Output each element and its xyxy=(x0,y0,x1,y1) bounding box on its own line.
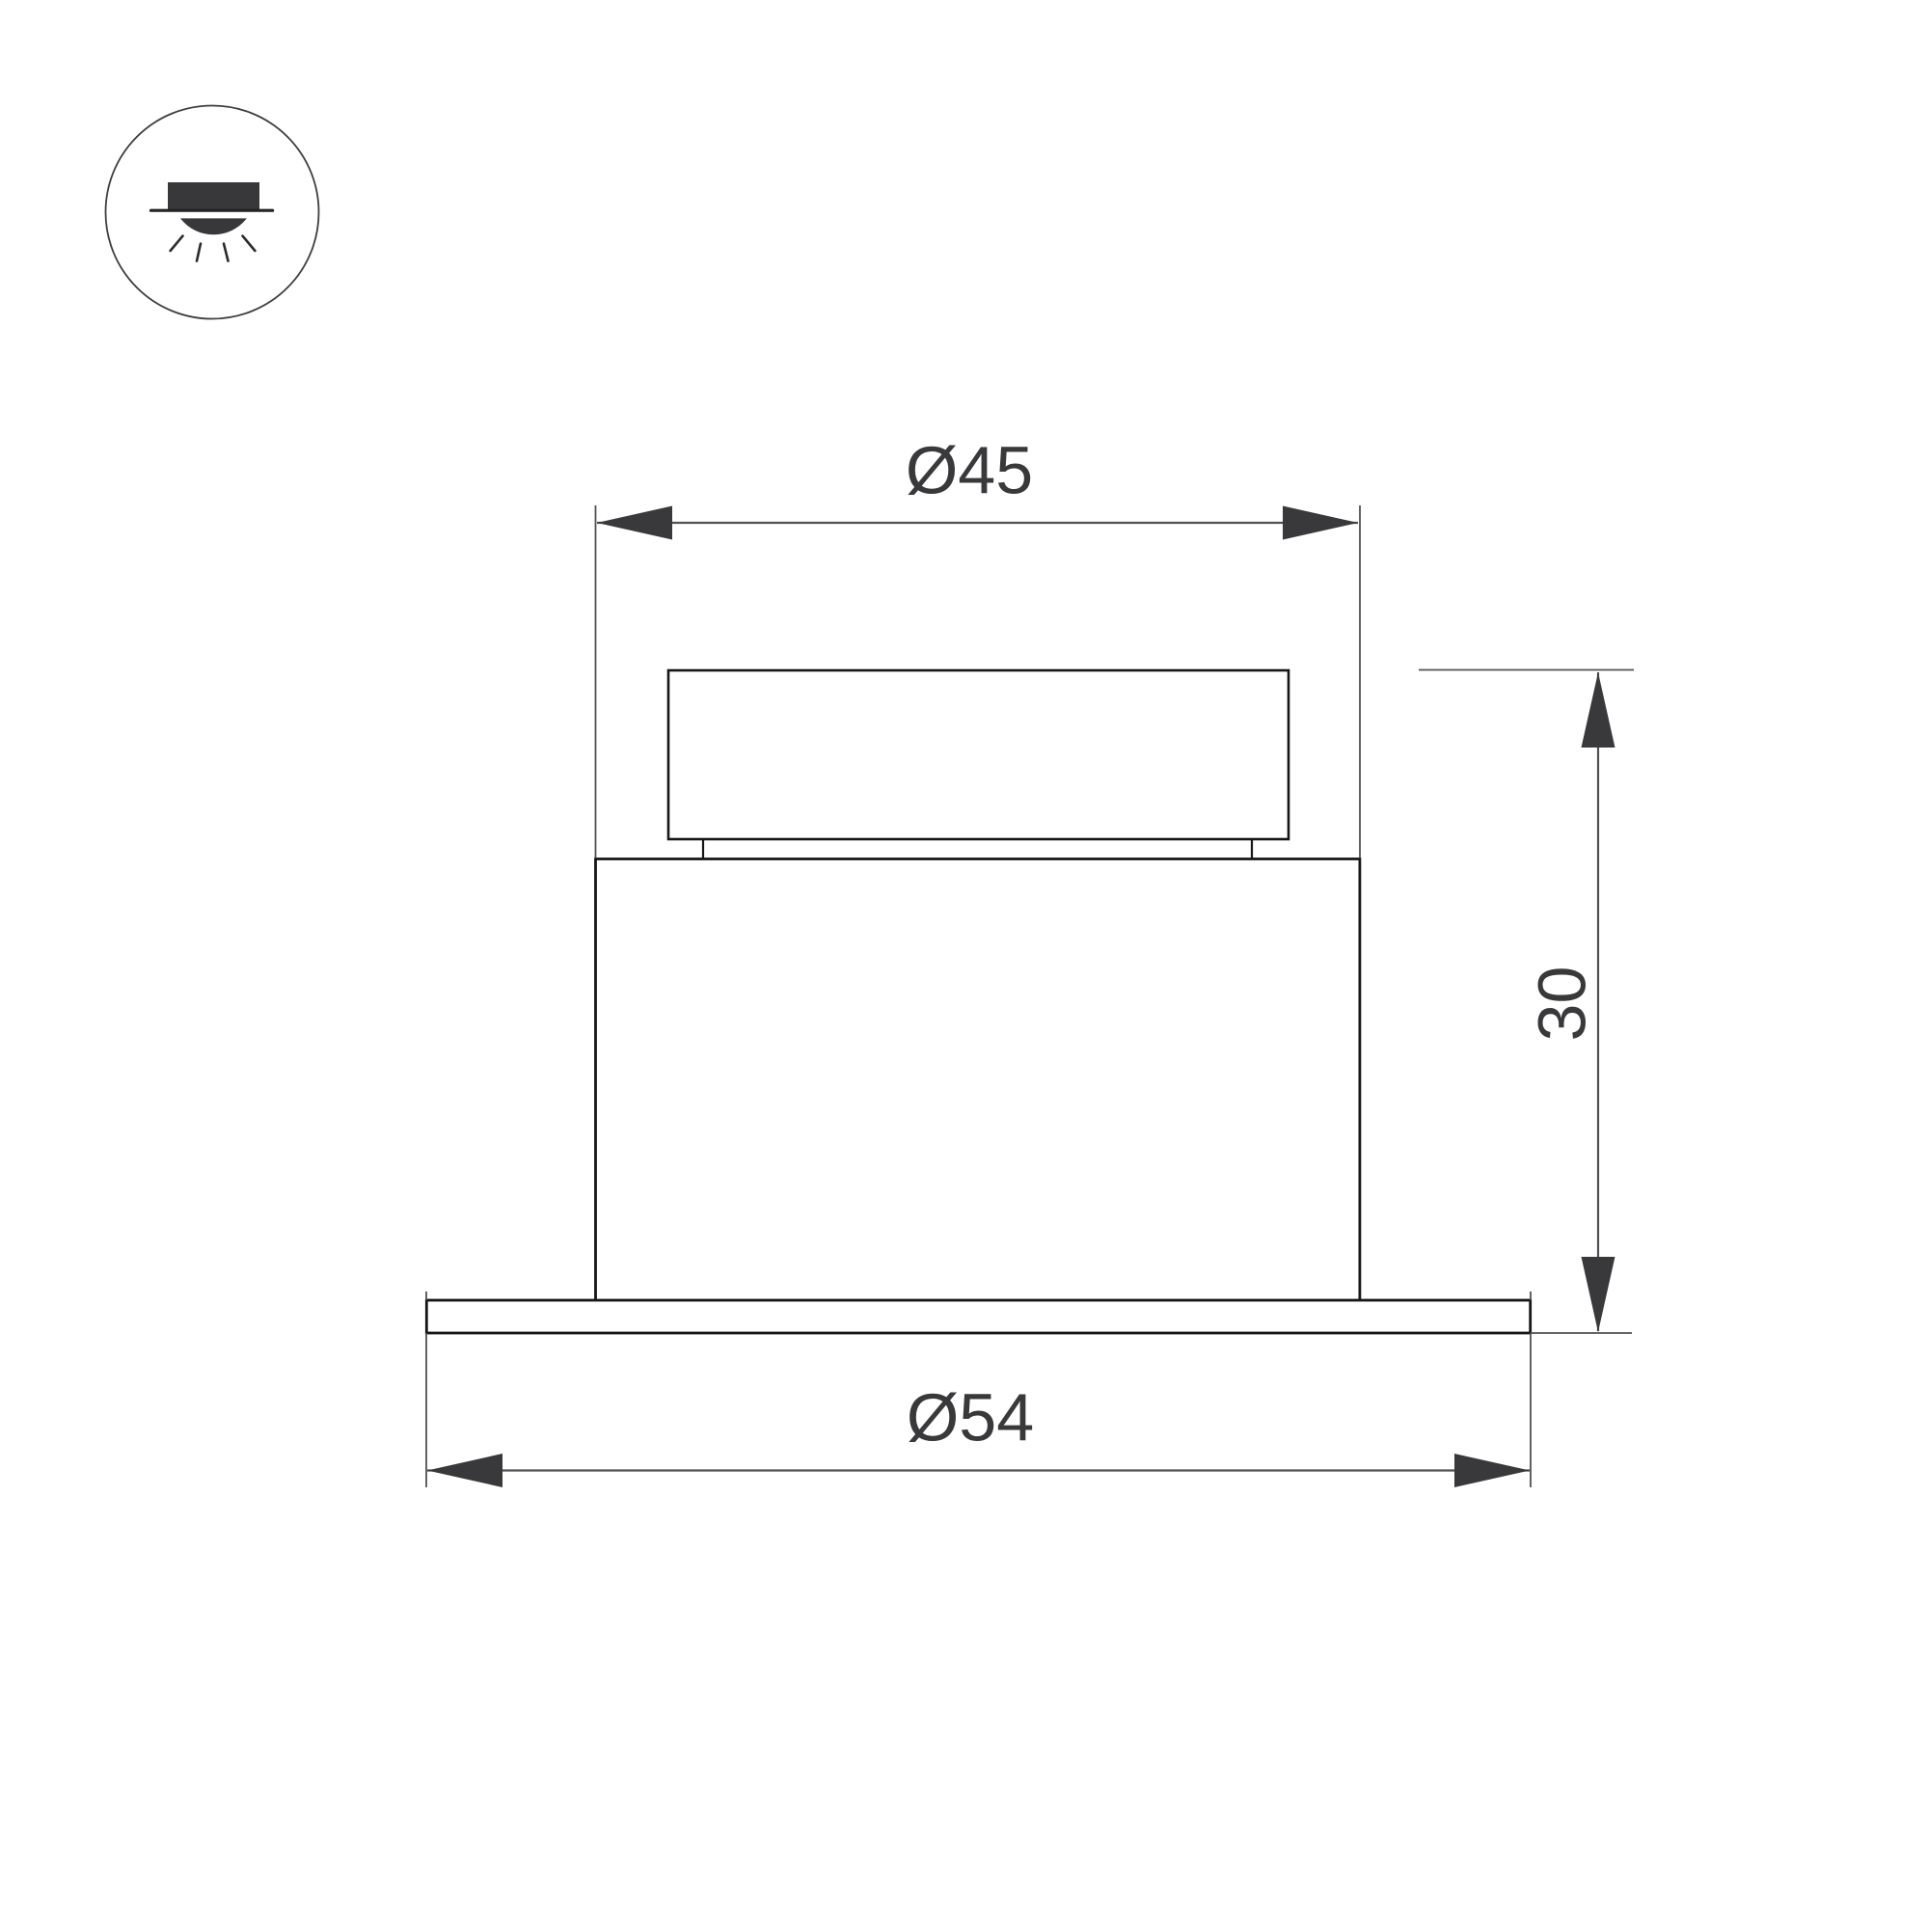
svg-text:Ø45: Ø45 xyxy=(906,433,1033,508)
svg-text:30: 30 xyxy=(1525,966,1600,1042)
svg-text:Ø54: Ø54 xyxy=(907,1380,1034,1456)
